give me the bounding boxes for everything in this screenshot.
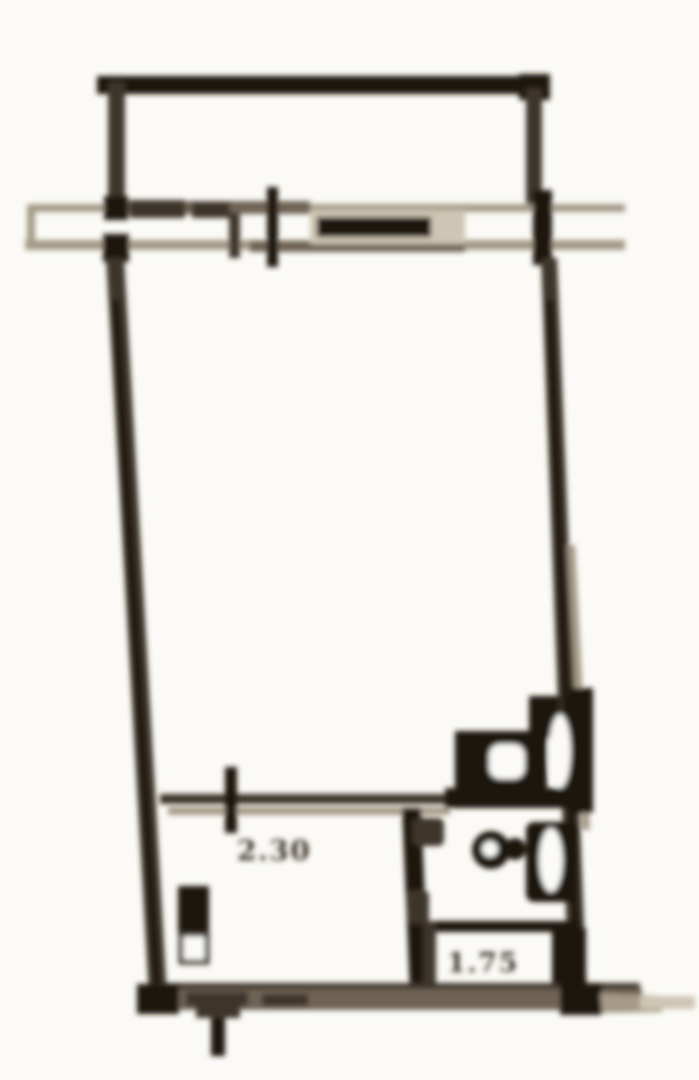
bottom-tick-stub — [196, 1006, 240, 1018]
balcony-parapet — [97, 76, 550, 94]
bathroom-wall-patch — [412, 818, 444, 846]
facade-left-cap — [27, 205, 35, 250]
floor-plan-svg: 1.75 2.30 — [0, 0, 699, 1080]
bathroom-low-blob — [407, 890, 429, 924]
entry-wall-thick — [570, 688, 593, 813]
entry-gap — [549, 714, 571, 788]
dimension-tick — [267, 187, 278, 267]
bottom-left-blob — [137, 984, 179, 1014]
floor-plan-scan: 1.75 2.30 — [0, 0, 699, 1080]
partition-line-dark — [160, 794, 450, 804]
kitchen-dimension-label: 2.30 — [237, 834, 311, 867]
bathtub-left-edge — [423, 921, 436, 993]
right-pier — [533, 190, 552, 265]
toilet-tank-icon — [504, 838, 526, 860]
bathtub-right-edge — [552, 928, 586, 992]
bottom-fade-tail — [640, 996, 695, 1009]
balcony-left-wall — [108, 82, 125, 210]
toilet-bowl-hole — [482, 841, 498, 857]
partition-tick — [225, 767, 237, 833]
bottom-dash-a — [186, 992, 248, 1006]
radiator-outline — [181, 934, 207, 962]
jamb-tick — [229, 213, 240, 258]
shaft-hole — [489, 744, 525, 779]
facade-window-bar — [317, 217, 431, 237]
bathtub-dimension-label: 1.75 — [447, 948, 519, 979]
sink-basin — [539, 828, 563, 892]
left-pier-bottom — [103, 234, 129, 262]
facade-top-dash-a — [130, 200, 185, 218]
bottom-dash-b — [262, 994, 308, 1006]
radiator-icon — [178, 886, 209, 934]
left-pier-top — [104, 196, 128, 220]
facade-top-dash-b — [192, 202, 230, 218]
paper-background — [0, 0, 699, 1080]
bottom-right-pier — [560, 983, 602, 1015]
